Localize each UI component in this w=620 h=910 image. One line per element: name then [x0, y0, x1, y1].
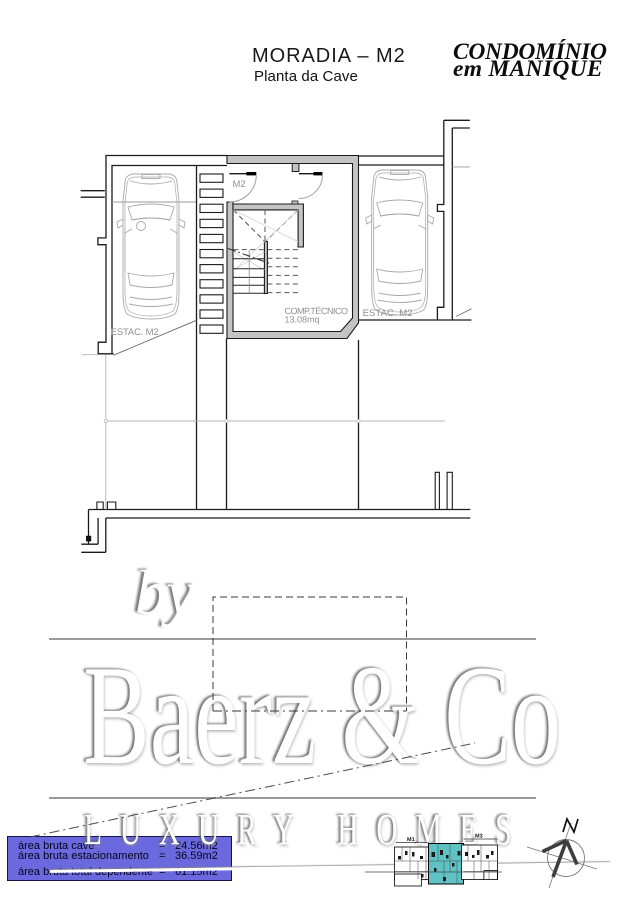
svg-text:ESTAC. M2: ESTAC. M2 — [111, 327, 159, 338]
svg-text:ESTAC. M2: ESTAC. M2 — [363, 308, 413, 319]
svg-text:M1: M1 — [407, 837, 415, 843]
svg-text:13.08mq: 13.08mq — [284, 315, 319, 325]
svg-text:M3: M3 — [475, 834, 483, 840]
svg-text:M2: M2 — [232, 179, 245, 190]
